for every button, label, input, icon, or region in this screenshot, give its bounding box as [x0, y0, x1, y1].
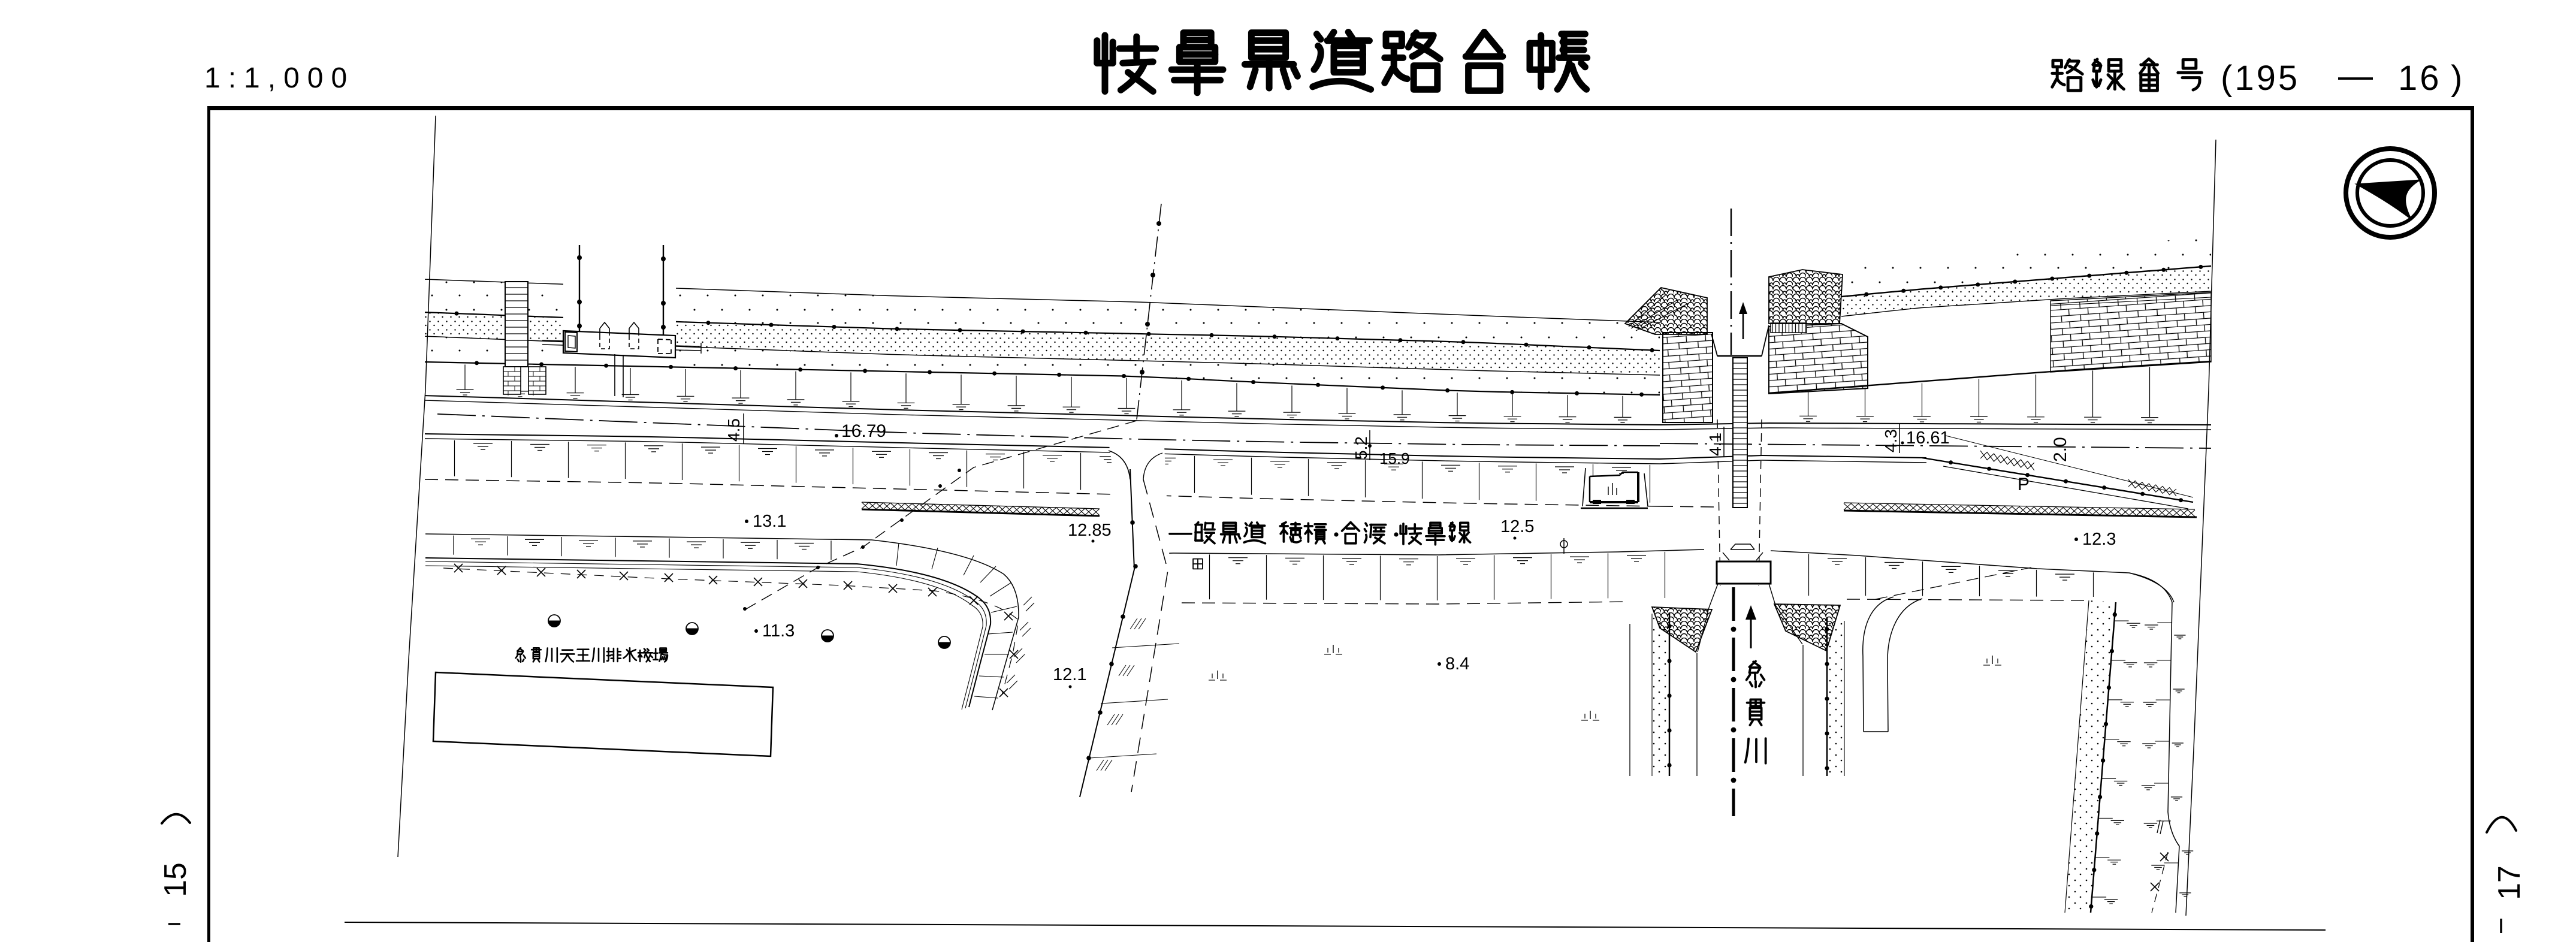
svg-text:13.1: 13.1 — [753, 512, 786, 531]
svg-text:(195: (195 — [2221, 59, 2300, 98]
svg-text:1:1,000: 1:1,000 — [204, 62, 355, 94]
svg-text:—: — — [2338, 56, 2373, 95]
svg-text:16.61: 16.61 — [1906, 428, 1950, 448]
svg-text:): ) — [2451, 59, 2462, 98]
svg-text:4.1: 4.1 — [1706, 433, 1725, 456]
svg-text:8.4: 8.4 — [1445, 654, 1469, 674]
svg-text:4.5: 4.5 — [724, 418, 743, 442]
svg-text:15.9: 15.9 — [1379, 449, 1410, 467]
svg-text:17: 17 — [2492, 865, 2527, 900]
svg-text:12.85: 12.85 — [1068, 521, 1112, 540]
svg-text:16.79: 16.79 — [841, 421, 886, 441]
svg-text:2.0: 2.0 — [2050, 437, 2070, 462]
svg-text:16: 16 — [2398, 59, 2442, 98]
svg-text:12.5: 12.5 — [1500, 517, 1534, 536]
svg-text:12.1: 12.1 — [1053, 665, 1086, 684]
svg-text:15: 15 — [158, 862, 193, 897]
svg-text:5.2: 5.2 — [1352, 436, 1370, 460]
svg-text:12.3: 12.3 — [2082, 530, 2116, 549]
svg-text:11.3: 11.3 — [762, 621, 795, 641]
svg-text:P: P — [2018, 475, 2030, 494]
svg-text:4.3: 4.3 — [1882, 429, 1900, 452]
